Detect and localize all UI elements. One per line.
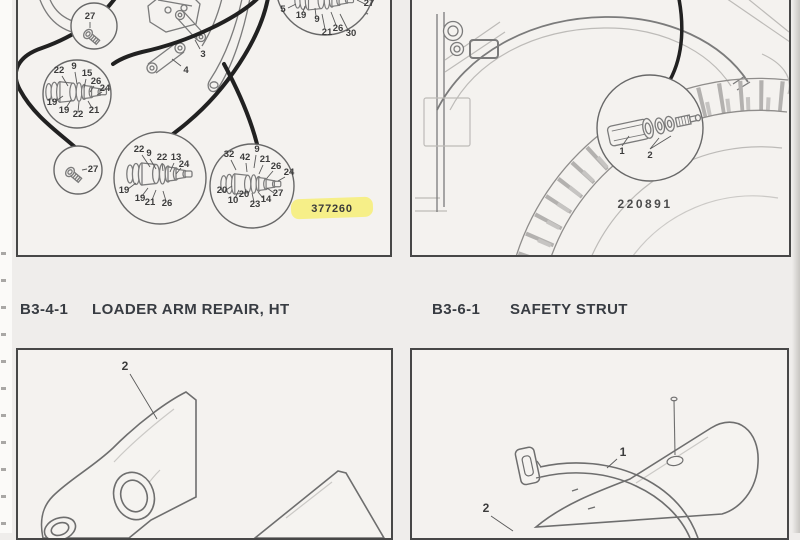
part-callout: 19: [119, 185, 130, 196]
figure-number-highlight: 377260: [291, 197, 374, 220]
part-callout: 3: [200, 49, 205, 60]
detail-circle-top-right-spool: 19 9 21 26 30 27: [276, 0, 374, 39]
inset-detail-circle: 1 2: [597, 75, 703, 181]
part-callout: 27: [364, 0, 375, 9]
part-callout: 27: [85, 11, 96, 22]
scanned-manual-page: 27 22 9 15 26 24 19 19 22 21: [0, 0, 800, 533]
detail-circle-top-bolt: 27: [71, 3, 117, 49]
part-callout: 19: [47, 97, 58, 108]
part-callout: 24: [179, 159, 190, 170]
part-callout: 4: [183, 65, 189, 76]
part-callout: 23: [250, 199, 261, 210]
section-code: B3-6-1: [432, 301, 510, 318]
part-callout: 21: [322, 27, 333, 38]
part-callout: 20: [217, 185, 228, 196]
part-callout: 9: [314, 14, 319, 25]
hydraulic-valve-figure: 27 22 9 15 26 24 19 19 22 21: [18, 0, 390, 255]
cylinder-art: [536, 397, 758, 527]
part-callout: 32: [224, 149, 235, 160]
panel-loader-arm-figure: 2: [16, 348, 393, 540]
part-callout: 9: [146, 148, 151, 159]
part-callout: 1: [619, 146, 625, 157]
part-callout: 26: [162, 198, 173, 209]
part-callout: 2: [647, 150, 652, 161]
part-callout: 2: [483, 501, 490, 515]
part-callout: 27: [88, 164, 99, 175]
second-arm-piece-art: [255, 471, 384, 538]
callouts: 2: [122, 359, 157, 419]
part-callout: 19: [135, 193, 146, 204]
part-callout: 9: [71, 61, 76, 72]
fender-art: [437, 17, 750, 110]
part-callout: 5: [280, 4, 286, 15]
figure-number: 220891: [617, 197, 672, 211]
wheel-figure: 1 2 220891: [412, 0, 789, 255]
part-callout: 22: [73, 109, 84, 120]
safety-strut-figure: 1 2: [412, 350, 787, 538]
panel-hydraulic-valve-figure: 27 22 9 15 26 24 19 19 22 21: [16, 0, 392, 257]
part-callout: 24: [284, 167, 295, 178]
part-callout: 26: [333, 23, 344, 34]
part-callout: 21: [260, 154, 271, 165]
part-callout: 22: [54, 65, 65, 76]
part-callout: 10: [228, 195, 239, 206]
part-callout: 30: [346, 28, 357, 39]
part-callout: 21: [145, 197, 156, 208]
frame-art: [424, 12, 505, 212]
panel-wheel-figure: 1 2 220891: [410, 0, 791, 257]
section-heading-loader-arm: B3-4-1 LOADER ARM REPAIR, HT: [20, 301, 290, 318]
panel-safety-strut-figure: 1 2: [410, 348, 789, 540]
detail-circle-mid-spool: 22 9 22 13 24 19 19 21 26: [114, 132, 206, 224]
part-callout: 1: [620, 445, 627, 459]
detail-circle-left-spool: 22 9 15 26 24 19 19 22 21: [43, 60, 111, 128]
part-callout: 20: [239, 189, 250, 200]
part-callout: 14: [261, 194, 272, 205]
part-callout: 42: [240, 152, 251, 163]
part-callout: 19: [59, 105, 70, 116]
binding-perforation-marks: [1, 228, 6, 533]
loader-arm-figure: 2: [18, 350, 391, 538]
part-callout: 22: [157, 152, 168, 163]
detail-circle-right-spool: 32 42 9 21 26 24 20 10 20 23 14 27: [210, 144, 295, 228]
figure-number: 377260: [311, 203, 353, 215]
detail-circle-bottom-bolt: 27: [54, 146, 102, 194]
part-callout: 2: [122, 359, 129, 373]
section-code: B3-4-1: [20, 301, 92, 318]
section-title: LOADER ARM REPAIR, HT: [92, 301, 290, 318]
part-callout: 26: [271, 161, 282, 172]
part-callout: 24: [100, 83, 111, 94]
part-callout: 27: [273, 188, 284, 199]
part-callout: 19: [296, 10, 307, 21]
section-title: SAFETY STRUT: [510, 301, 628, 318]
loader-arm-plate-art: [41, 392, 196, 538]
part-callout: 21: [89, 105, 100, 116]
part-callout: 22: [134, 144, 145, 155]
section-heading-safety-strut: B3-6-1 SAFETY STRUT: [432, 301, 628, 318]
page-right-edge-shadow: [792, 0, 800, 533]
